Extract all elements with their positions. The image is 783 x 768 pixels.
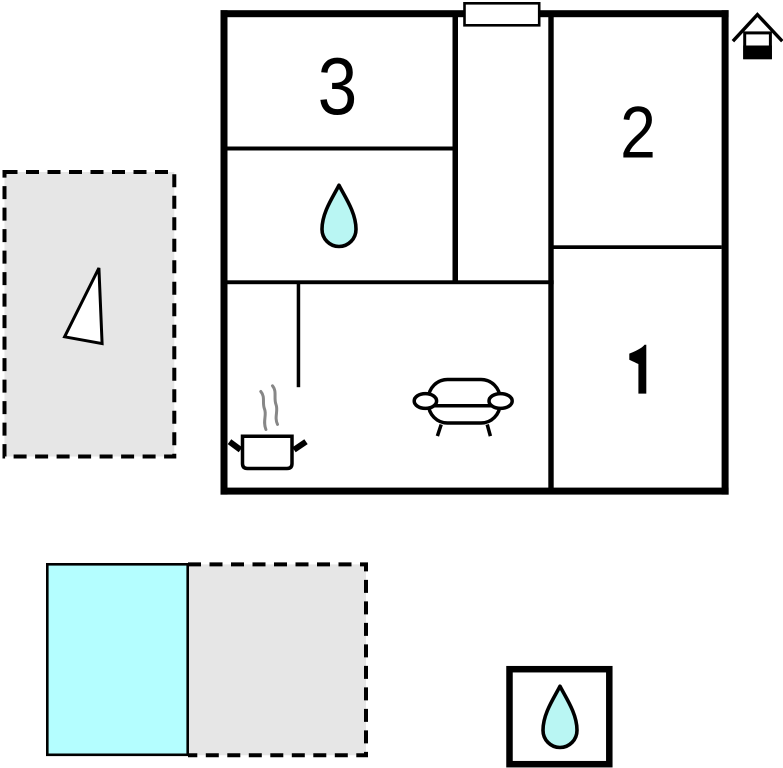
- svg-text:3: 3: [318, 42, 358, 132]
- svg-text:2: 2: [620, 91, 656, 173]
